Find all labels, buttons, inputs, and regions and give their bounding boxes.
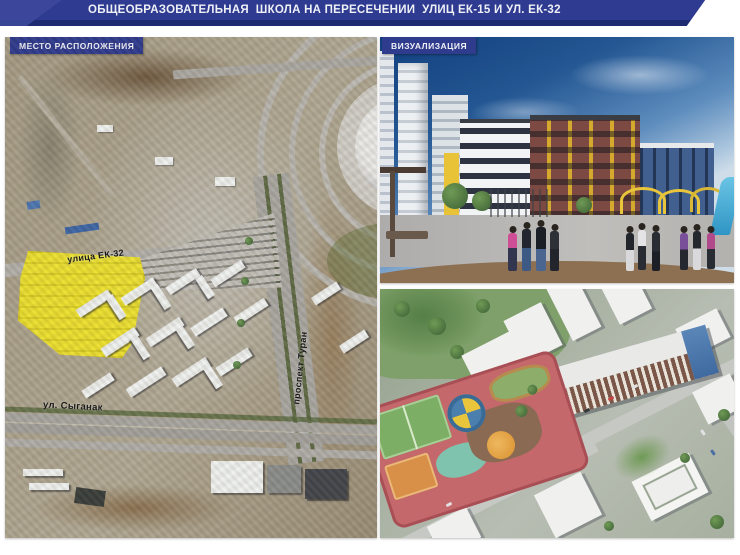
- construction-row: [23, 469, 63, 476]
- school-building-aerial: [556, 325, 719, 416]
- tree-icon: [576, 197, 592, 213]
- highrise-tower: [398, 63, 428, 221]
- tree-icon: [245, 237, 253, 245]
- person: [707, 233, 715, 269]
- person: [522, 229, 531, 271]
- satellite-map: улица ЕК-32 ул. Сыганак проспект Туран М…: [5, 37, 377, 538]
- car: [700, 429, 706, 436]
- dark-block: [74, 487, 106, 507]
- tree-icon: [604, 521, 614, 531]
- aerial-render: [380, 289, 734, 538]
- facade-render: ВИЗУАЛИЗАЦИЯ: [380, 37, 734, 283]
- blue-roof-building: [65, 223, 100, 235]
- construction-building: [155, 157, 173, 165]
- car: [710, 449, 716, 456]
- bench: [386, 231, 428, 239]
- playground-green-patch: [486, 359, 554, 407]
- slide-title: ОБЩЕОБРАЗОВАТЕЛЬНАЯ ШКОЛА НА ПЕРЕСЕЧЕНИИ…: [88, 0, 561, 21]
- white-mall-building: [211, 461, 263, 493]
- person: [638, 230, 646, 270]
- apartment-block: [126, 366, 167, 397]
- construction-building: [215, 177, 235, 186]
- tree-icon: [428, 317, 446, 335]
- person: [626, 233, 634, 271]
- building-right-of-avenue: [311, 282, 341, 306]
- building-right-of-avenue: [339, 330, 369, 354]
- pergola-beam: [380, 167, 426, 173]
- person: [536, 227, 546, 271]
- road-diagonal-topleft: [17, 75, 114, 197]
- football-court: [380, 394, 452, 460]
- person: [693, 231, 701, 270]
- apartment-block: [81, 372, 114, 398]
- tree-icon: [442, 183, 468, 209]
- blue-tarp-structure: [27, 200, 41, 210]
- person: [652, 232, 660, 271]
- tree-icon: [394, 301, 410, 317]
- gray-roof-building: [267, 465, 301, 493]
- fence: [490, 189, 550, 217]
- person: [508, 233, 517, 271]
- car: [584, 408, 591, 413]
- tree-icon: [680, 453, 690, 463]
- tree-icon: [710, 515, 724, 529]
- visualization-badge: ВИЗУАЛИЗАЦИЯ: [382, 37, 476, 54]
- apartment-block: [190, 307, 227, 336]
- construction-building: [97, 125, 113, 132]
- location-badge: МЕСТО РАСПОЛОЖЕНИЯ: [10, 37, 143, 54]
- tree-icon: [241, 277, 249, 285]
- tree-icon: [472, 191, 492, 211]
- tree-icon: [476, 299, 490, 313]
- title-banner: ОБЩЕОБРАЗОВАТЕЛЬНАЯ ШКОЛА НА ПЕРЕСЕЧЕНИИ…: [0, 0, 740, 26]
- pergola-post: [390, 171, 395, 257]
- tree-icon: [233, 361, 241, 369]
- tree-icon: [237, 319, 245, 327]
- cloud: [570, 55, 710, 95]
- tree-icon: [718, 409, 730, 421]
- dark-roof-building: [305, 469, 347, 499]
- white-tower: [600, 289, 652, 325]
- construction-row: [29, 483, 69, 490]
- orange-court: [384, 452, 439, 500]
- person: [550, 231, 559, 271]
- person: [680, 233, 688, 270]
